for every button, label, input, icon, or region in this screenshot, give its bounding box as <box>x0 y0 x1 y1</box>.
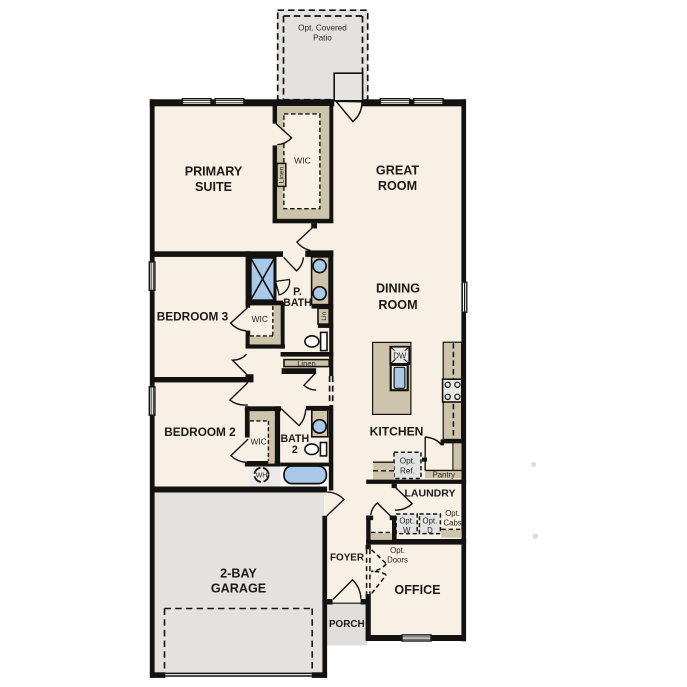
svg-text:Patio: Patio <box>313 34 332 43</box>
svg-text:BEDROOM 2: BEDROOM 2 <box>164 425 236 439</box>
svg-text:OFFICE: OFFICE <box>394 583 440 597</box>
svg-text:Linen: Linen <box>297 359 316 368</box>
svg-text:W: W <box>403 526 411 535</box>
svg-text:Opt. Covered: Opt. Covered <box>298 24 347 33</box>
svg-text:2: 2 <box>292 444 298 456</box>
svg-text:PORCH: PORCH <box>329 619 365 630</box>
svg-text:Ref.: Ref. <box>400 466 415 475</box>
svg-text:Lin: Lin <box>321 311 328 320</box>
svg-text:WIC: WIC <box>250 436 266 446</box>
svg-text:BEDROOM 3: BEDROOM 3 <box>157 310 229 324</box>
svg-text:BATH: BATH <box>280 433 309 445</box>
svg-text:ROOM: ROOM <box>378 179 417 193</box>
svg-text:2-BAY: 2-BAY <box>220 567 257 581</box>
svg-text:P.: P. <box>293 286 302 298</box>
svg-text:WH: WH <box>256 472 268 479</box>
svg-text:ROOM: ROOM <box>378 298 417 312</box>
svg-text:Opt.: Opt. <box>423 517 438 526</box>
svg-text:FOYER: FOYER <box>330 553 364 564</box>
svg-text:SUITE: SUITE <box>195 180 232 194</box>
svg-text:PRIMARY: PRIMARY <box>185 165 243 179</box>
svg-text:BATH: BATH <box>283 297 312 309</box>
svg-text:Opt.: Opt. <box>390 546 405 555</box>
svg-text:WIC: WIC <box>252 314 268 324</box>
svg-text:Doors: Doors <box>387 556 408 565</box>
svg-text:Opt.: Opt. <box>399 517 414 526</box>
svg-text:GREAT: GREAT <box>376 164 419 178</box>
svg-text:Opt.: Opt. <box>445 509 460 518</box>
svg-text:Cabs: Cabs <box>443 519 461 528</box>
svg-text:KITCHEN: KITCHEN <box>370 424 424 438</box>
svg-text:Opt.: Opt. <box>400 456 415 465</box>
svg-text:WIC: WIC <box>294 156 311 166</box>
svg-text:GARAGE: GARAGE <box>211 582 266 596</box>
svg-text:D: D <box>427 526 433 535</box>
svg-text:LAUNDRY: LAUNDRY <box>405 488 456 500</box>
svg-text:DW: DW <box>393 351 407 360</box>
svg-text:Linen: Linen <box>279 166 286 183</box>
svg-text:Pantry: Pantry <box>433 471 456 480</box>
svg-text:DINING: DINING <box>376 282 420 296</box>
